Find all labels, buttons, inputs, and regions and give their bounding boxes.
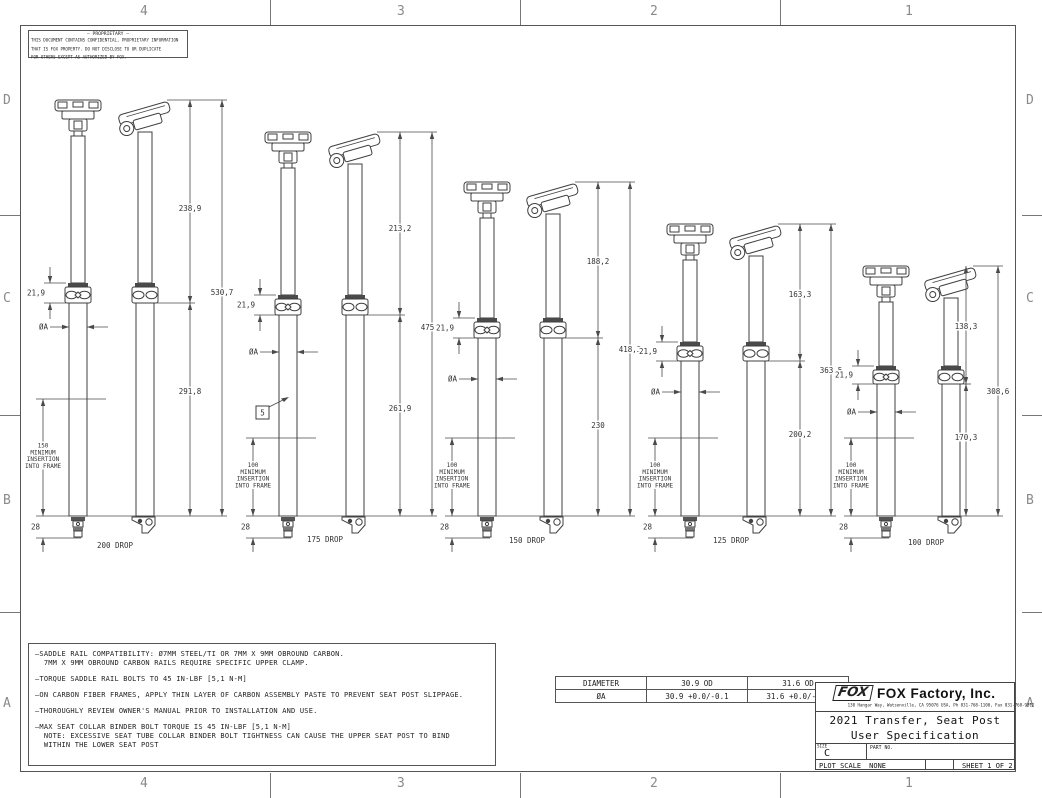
clamp-lower <box>471 193 503 201</box>
clamp-lower <box>62 111 94 119</box>
clamp-slot <box>89 102 98 108</box>
clamp-lower <box>272 143 304 151</box>
upper-tube <box>348 164 362 295</box>
dimension-arrow <box>798 354 802 361</box>
dimension-arrow <box>272 350 279 354</box>
collar-detail <box>757 350 768 358</box>
clamp-slot <box>866 268 875 274</box>
dimension-arrow <box>48 276 52 283</box>
dimension-arrow <box>849 438 853 445</box>
clamp-slot <box>58 102 67 108</box>
dim-stub: 28 <box>31 523 41 532</box>
actuator-detail <box>688 522 691 525</box>
dim-lower-length: 291,8 <box>179 387 202 396</box>
plot-scale-value: NONE <box>869 762 886 770</box>
collar-detail <box>939 373 950 381</box>
dimension-arrow <box>895 410 902 414</box>
dimension-arrow <box>653 438 657 445</box>
actuator-detail <box>286 522 289 525</box>
post-125: 163,3200,2363,521,9ØA100MINIMUMINSERTION… <box>637 224 842 552</box>
drop-label: 200 DROP <box>97 541 134 550</box>
lever-hole <box>757 519 763 525</box>
company-name: FOX Factory, Inc. <box>877 686 996 701</box>
plot-scale-label: PLOT SCALE <box>819 762 861 770</box>
flag-note-number: 5 <box>260 409 265 418</box>
dim-upper-length: 213,2 <box>389 224 412 233</box>
actuator-band <box>283 527 293 531</box>
table-header-row-cell: DIAMETER <box>556 677 647 690</box>
dimension-arrow <box>856 359 860 366</box>
dim-total-length: 418,3 <box>619 345 642 354</box>
collar-detail <box>343 303 354 311</box>
diameter-table: DIAMETER30.9 OD31.6 ODØA30.9 +0.0/-0.131… <box>555 676 849 703</box>
dimension-arrow <box>596 338 600 345</box>
lower-tube <box>346 315 364 516</box>
lower-tube <box>279 315 297 516</box>
dimension-arrow <box>660 361 664 368</box>
dim-upper-length: 238,9 <box>179 204 202 213</box>
part-no-label: PART NO. <box>870 745 893 751</box>
dimension-arrow <box>258 315 262 322</box>
dimension-arrow <box>188 296 192 303</box>
dimension-arrow <box>596 331 600 338</box>
table-row: ØA30.9 +0.0/-0.131.6 +0.0/-0.1 <box>556 690 849 703</box>
dimension-arrow <box>964 384 968 391</box>
lever-pivot <box>749 519 753 523</box>
clamp-lower <box>674 235 706 243</box>
collar-detail <box>356 303 367 311</box>
seal-band <box>876 366 896 370</box>
dim-lower-length: 170,3 <box>955 433 978 442</box>
dim-stub: 28 <box>643 523 653 532</box>
upper-tube <box>138 132 152 283</box>
actuator-detail <box>485 522 488 525</box>
dim-collar-height: 21,9 <box>639 347 657 356</box>
dimension-arrow <box>430 132 434 139</box>
actuator-band <box>482 527 492 531</box>
actuator-tip <box>882 531 890 537</box>
dim-total-length: 308,6 <box>987 387 1010 396</box>
seal-band <box>345 295 365 299</box>
clamp-lower <box>870 277 902 285</box>
dim-stub: 28 <box>839 523 849 532</box>
dimension-arrow <box>870 410 877 414</box>
clamp-bolt <box>882 287 890 295</box>
clamp-slot <box>482 184 492 189</box>
dimension-arrow <box>798 224 802 231</box>
lower-tube <box>544 338 562 516</box>
actuator-detail <box>884 522 887 525</box>
notes-box: —SADDLE RAIL COMPATIBILITY: Ø7MM STEEL/T… <box>28 643 496 766</box>
insertion-note-line: INTO FRAME <box>235 482 272 489</box>
lever-pivot <box>138 519 142 523</box>
dim-collar-height: 21,9 <box>237 301 255 310</box>
insertion-note-line: INTO FRAME <box>434 482 471 489</box>
lower-tube <box>478 338 496 516</box>
dim-upper-length: 188,2 <box>587 257 610 266</box>
seal-band <box>135 283 155 287</box>
clamp-slot <box>283 134 293 139</box>
dim-lower-length: 261,9 <box>389 404 412 413</box>
collar-detail <box>133 291 144 299</box>
dimension-arrow <box>996 266 1000 273</box>
post-150: 188,2230418,321,9ØA100MINIMUMINSERTIONIN… <box>434 182 641 552</box>
plot-scale-cell: PLOT SCALE NONE <box>816 760 926 770</box>
dimension-arrow <box>251 509 255 516</box>
clamp-slot <box>670 226 679 232</box>
dimension-arrow <box>48 303 52 310</box>
part-no-cell: PART NO. <box>867 744 1014 759</box>
dim-stub: 28 <box>440 523 450 532</box>
seal-band <box>278 295 298 299</box>
clamp-bolt <box>74 121 82 129</box>
size-value: C <box>824 748 830 759</box>
dim-lower-length: 230 <box>591 421 605 430</box>
collar-detail <box>146 291 157 299</box>
dimension-arrow <box>297 350 304 354</box>
dimension-arrow <box>62 325 69 329</box>
lower-tube <box>136 303 154 516</box>
sheet-number: SHEET 1 OF 2 <box>954 760 1014 770</box>
actuator-band <box>73 527 83 531</box>
dimension-arrow <box>220 100 224 107</box>
dimension-arrow <box>450 438 454 445</box>
dim-collar-height: 21,9 <box>436 324 454 333</box>
upper-tube <box>749 256 763 342</box>
clamp-slot <box>498 184 507 190</box>
actuator-flange <box>480 517 494 521</box>
lever-hole <box>952 519 958 525</box>
title-block: FOX FOX Factory, Inc. 130 Hangar Way, Wa… <box>815 682 1015 770</box>
dimension-arrow <box>188 100 192 107</box>
drop-label: 175 DROP <box>307 535 344 544</box>
collar-detail <box>744 350 755 358</box>
dimension-arrow <box>849 509 853 516</box>
actuator-flange <box>683 517 697 521</box>
notes-list: —SADDLE RAIL COMPATIBILITY: Ø7MM STEEL/T… <box>35 650 491 750</box>
dimension-arrow <box>996 509 1000 516</box>
upper-tube <box>683 260 697 342</box>
upper-tube <box>480 218 494 318</box>
dimension-arrow <box>41 399 45 406</box>
dim-collar-height: 21,9 <box>27 289 45 298</box>
clamp-bolt <box>686 245 694 253</box>
drop-label: 125 DROP <box>713 536 750 545</box>
insertion-note-line: INTO FRAME <box>637 482 674 489</box>
table-header-row: DIAMETER30.9 OD31.6 OD <box>556 677 849 690</box>
clamp-slot <box>467 184 476 190</box>
dimension-arrow <box>41 509 45 516</box>
dimension-arrow <box>251 438 255 445</box>
actuator-tip <box>483 531 491 537</box>
drawing-sheet: 43214321DCBADCBA — PROPRIETARY — THIS DO… <box>0 0 1042 798</box>
seal-band <box>543 318 563 322</box>
actuator-band <box>881 527 891 531</box>
note-item: —ON CARBON FIBER FRAMES, APPLY THIN LAYE… <box>35 691 491 700</box>
note-item: —SADDLE RAIL COMPATIBILITY: Ø7MM STEEL/T… <box>35 650 491 668</box>
fox-logo: FOX <box>833 685 874 701</box>
actuator-flange <box>71 517 85 521</box>
upper-tube <box>944 298 958 366</box>
dimension-arrow <box>398 308 402 315</box>
note-item: —THOROUGHLY REVIEW OWNER'S MANUAL PRIOR … <box>35 707 491 716</box>
actuator-tip <box>686 531 694 537</box>
dimension-arrow <box>450 509 454 516</box>
dimension-arrow <box>829 224 833 231</box>
seal-band <box>746 342 766 346</box>
dimension-arrow <box>596 182 600 189</box>
drop-label: 100 DROP <box>908 538 945 547</box>
actuator-detail <box>76 522 79 525</box>
lower-tube <box>942 384 960 516</box>
upper-tube <box>71 136 85 283</box>
dimension-arrow <box>699 390 706 394</box>
collar-detail <box>554 326 565 334</box>
dimension-arrow <box>596 509 600 516</box>
dimension-arrow <box>398 315 402 322</box>
dim-lower-length: 200,2 <box>789 430 812 439</box>
dimension-arrow <box>220 509 224 516</box>
seal-band <box>941 366 961 370</box>
table-row-cell: ØA <box>556 690 647 703</box>
actuator-flange <box>879 517 893 521</box>
table-header-row-cell: 30.9 OD <box>647 677 748 690</box>
dimension-arrow <box>251 538 255 545</box>
dimension-arrow <box>798 361 802 368</box>
post-200: 238,9291,8530,721,9ØA150MINIMUMINSERTION… <box>25 100 233 552</box>
dimension-arrow <box>628 182 632 189</box>
lever-pivot <box>546 519 550 523</box>
dimension-arrow <box>798 509 802 516</box>
post-100: 138,3170,3308,621,9ØA100MINIMUMINSERTION… <box>833 266 1010 552</box>
lever-hole <box>146 519 152 525</box>
seal-band <box>680 342 700 346</box>
dim-diameter-label: ØA <box>448 375 458 384</box>
actuator-flange <box>281 517 295 521</box>
clamp-bolt <box>483 203 491 211</box>
dimension-arrow <box>660 335 664 342</box>
dimension-arrow <box>87 325 94 329</box>
clamp-slot <box>268 134 277 140</box>
post-175: 213,2261,9475,121,9ØA100MINIMUMINSERTION… <box>235 132 443 552</box>
lower-tube <box>877 384 895 516</box>
lower-tube <box>681 361 699 516</box>
dim-total-length: 530,7 <box>211 288 234 297</box>
collar-detail <box>952 373 963 381</box>
dimension-arrow <box>964 509 968 516</box>
note-item: —MAX SEAT COLLAR BINDER BOLT TORQUE IS 4… <box>35 723 491 750</box>
lower-tube <box>69 303 87 516</box>
dimension-arrow <box>471 377 478 381</box>
dimension-arrow <box>430 509 434 516</box>
drop-label: 150 DROP <box>509 536 546 545</box>
dimension-arrow <box>829 509 833 516</box>
clamp-slot <box>881 268 891 273</box>
clamp-slot <box>701 226 710 232</box>
dim-upper-length: 138,3 <box>955 322 978 331</box>
clamp-slot <box>299 134 308 140</box>
collar-detail <box>541 326 552 334</box>
dim-stub: 28 <box>241 523 251 532</box>
clamp-bolt <box>284 153 292 161</box>
dimension-arrow <box>653 538 657 545</box>
dimension-arrow <box>41 538 45 545</box>
dimension-arrow <box>849 538 853 545</box>
seal-band <box>477 318 497 322</box>
dimension-arrow <box>398 132 402 139</box>
dimension-arrow <box>496 377 503 381</box>
upper-tube <box>281 168 295 295</box>
upper-tube <box>546 214 560 318</box>
size-cell: SIZE C <box>816 744 867 759</box>
lever-hole <box>554 519 560 525</box>
actuator-band <box>685 527 695 531</box>
dim-diameter-label: ØA <box>651 388 661 397</box>
dimension-arrow <box>628 509 632 516</box>
insertion-note-line: INTO FRAME <box>833 482 870 489</box>
dimension-arrow <box>653 509 657 516</box>
seal-band <box>68 283 88 287</box>
insertion-note-line: INTO FRAME <box>25 463 62 470</box>
drawing-title: 2021 Transfer, Seat Post User Specificat… <box>816 712 1014 744</box>
dimension-arrow <box>457 338 461 345</box>
dimension-arrow <box>674 390 681 394</box>
table-row-cell: 30.9 +0.0/-0.1 <box>647 690 748 703</box>
lower-tube <box>747 361 765 516</box>
dimension-arrow <box>188 509 192 516</box>
dimension-arrow <box>398 509 402 516</box>
company-address: 130 Hangar Way, Watsonville, CA 95076 US… <box>848 703 983 708</box>
clamp-slot <box>685 226 695 231</box>
title-block-company-row: FOX FOX Factory, Inc. 130 Hangar Way, Wa… <box>816 683 1014 712</box>
clamp-slot <box>897 268 906 274</box>
lever-pivot <box>348 519 352 523</box>
dim-upper-length: 163,3 <box>789 290 812 299</box>
lever-pivot <box>944 519 948 523</box>
drawing-title-line1: 2021 Transfer, Seat Post <box>816 713 1014 728</box>
dimension-arrow <box>450 538 454 545</box>
actuator-tip <box>74 531 82 537</box>
upper-tube <box>879 302 893 366</box>
lever-hole <box>356 519 362 525</box>
note-item: —TORQUE SADDLE RAIL BOLTS TO 45 IN-LBF [… <box>35 675 491 684</box>
dimension-arrow <box>457 311 461 318</box>
clamp-slot <box>73 102 83 107</box>
actuator-tip <box>284 531 292 537</box>
dim-diameter-label: ØA <box>249 348 259 357</box>
dim-diameter-label: ØA <box>39 323 49 332</box>
dim-diameter-label: ØA <box>847 408 857 417</box>
drawing-title-line2: User Specification <box>816 728 1014 743</box>
dimension-arrow <box>856 384 860 391</box>
dim-collar-height: 21,9 <box>835 371 853 380</box>
title-block-empty-cell <box>926 760 954 770</box>
dimension-arrow <box>258 288 262 295</box>
dimension-arrow <box>188 303 192 310</box>
